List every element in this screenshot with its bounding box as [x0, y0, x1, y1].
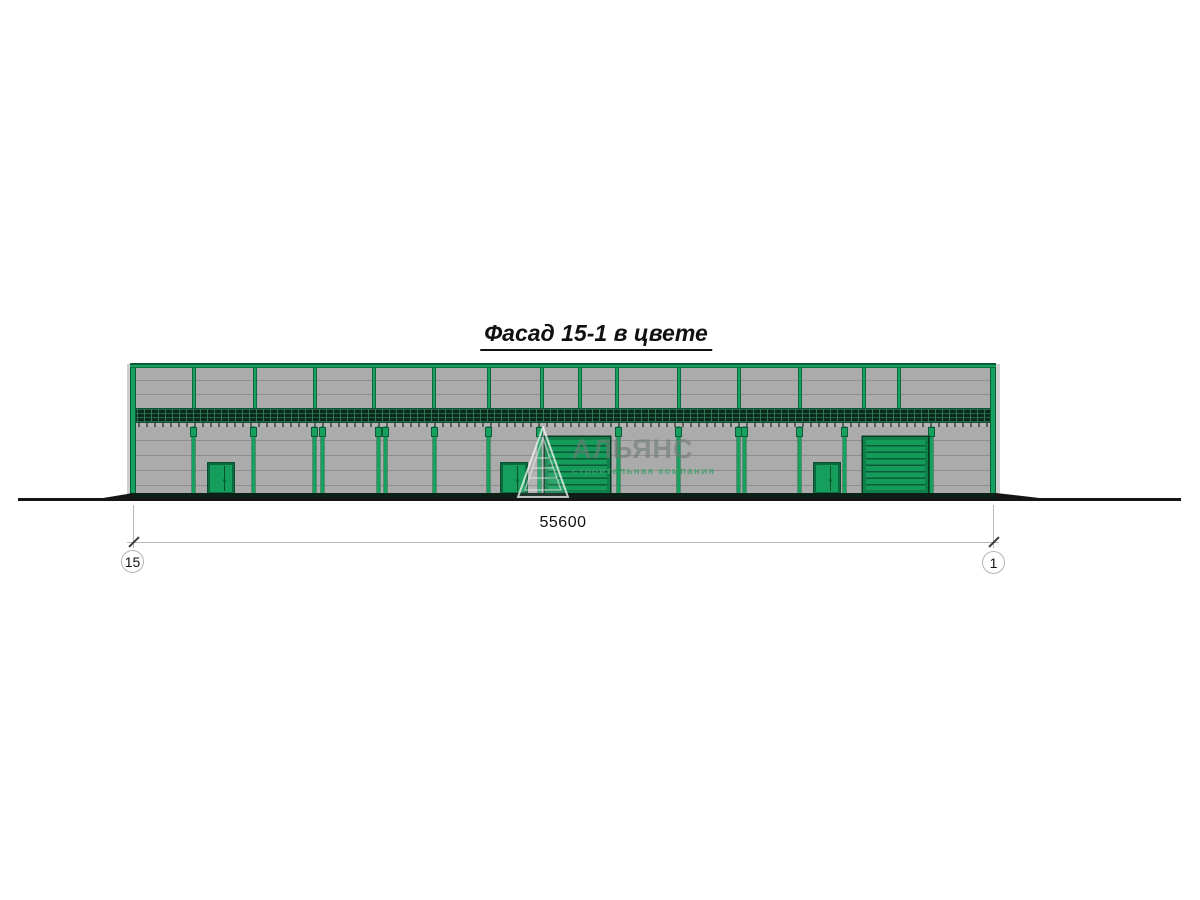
- column-cap-stub: [615, 427, 622, 437]
- upper-mullion: [677, 363, 681, 408]
- column-cap-stub: [841, 427, 848, 437]
- panel-joint: [130, 380, 996, 381]
- flashing-strip: [130, 423, 996, 427]
- upper-mullion: [372, 363, 376, 408]
- upper-mullion: [862, 363, 866, 408]
- column-cap-stub: [375, 427, 382, 437]
- axis-label-left: 15: [125, 554, 141, 570]
- entrance-door: [814, 463, 840, 494]
- panel-joint: [130, 394, 996, 395]
- left-edge-sliver: [127, 364, 130, 498]
- column-cap-stub: [190, 427, 197, 437]
- axis-label-right: 1: [990, 555, 998, 571]
- column-cap-stub: [250, 427, 257, 437]
- column-cap-stub: [796, 427, 803, 437]
- dimension-line: [127, 542, 999, 543]
- drawing-title: Фасад 15-1 в цвете: [480, 320, 712, 351]
- upper-wall-panels: [130, 368, 996, 408]
- drawing-canvas: Фасад 15-1 в цвете АЛЬЯНС строительная к…: [0, 0, 1200, 900]
- column-cap-stub: [928, 427, 935, 437]
- column-cap-stub: [675, 427, 682, 437]
- column-cap-stub: [485, 427, 492, 437]
- sectional-gate: [863, 437, 928, 494]
- upper-mullion: [192, 363, 196, 408]
- building-elevation: [130, 363, 996, 500]
- column-cap-stub: [431, 427, 438, 437]
- upper-mullion: [487, 363, 491, 408]
- ground-line: [18, 498, 1181, 501]
- entrance-door: [501, 463, 527, 494]
- decorative-band: [130, 408, 996, 423]
- upper-mullion: [798, 363, 802, 408]
- sectional-gate: [545, 437, 610, 494]
- upper-mullion: [313, 363, 317, 408]
- axis-bubble-15: 15: [121, 550, 144, 573]
- column-cap-stub: [382, 427, 389, 437]
- parapet-cap: [130, 363, 996, 368]
- upper-mullion: [615, 363, 619, 408]
- right-edge-sliver: [996, 364, 1000, 498]
- corner-post-left: [130, 363, 136, 494]
- upper-mullion: [897, 363, 901, 408]
- column-cap-stub: [311, 427, 318, 437]
- column-cap-stub: [319, 427, 326, 437]
- upper-mullion: [432, 363, 436, 408]
- upper-mullion: [253, 363, 257, 408]
- column-cap-stub: [536, 427, 543, 437]
- upper-mullion: [578, 363, 582, 408]
- dimension-value: 55600: [540, 514, 587, 532]
- axis-bubble-1: 1: [982, 551, 1005, 574]
- entrance-door: [208, 463, 234, 494]
- upper-mullion: [737, 363, 741, 408]
- upper-mullion: [540, 363, 544, 408]
- column-cap-stub: [741, 427, 748, 437]
